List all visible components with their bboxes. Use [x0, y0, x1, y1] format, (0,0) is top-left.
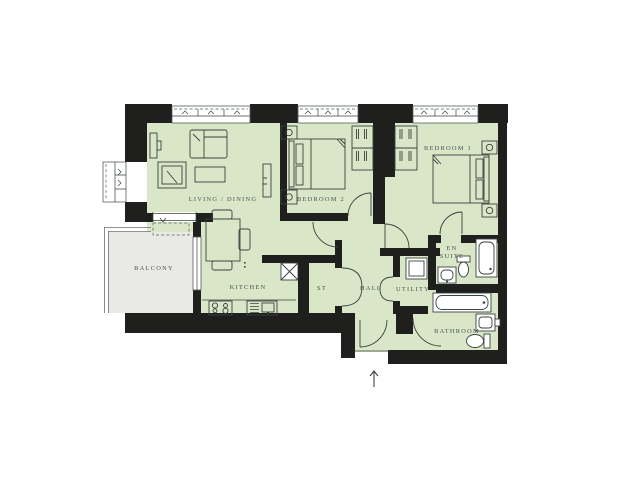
balcony-floor — [109, 232, 193, 313]
window-bedroom-1 — [413, 106, 478, 123]
label-utility: UTILITY — [396, 286, 430, 293]
label-balcony: BALCONY — [134, 265, 174, 272]
label-living-dining: LIVING / DINING — [189, 196, 257, 203]
bath — [433, 293, 491, 312]
services-cupboard — [281, 263, 298, 280]
label-bedroom-1: BEDROOM 1 — [424, 145, 472, 152]
en-suite-basin — [438, 267, 456, 283]
bathroom-wc — [467, 334, 491, 348]
label-en-suite-line2: SUITE — [440, 253, 464, 260]
window-bedroom-2 — [298, 106, 358, 123]
exterior-bottom-left — [100, 333, 343, 393]
floorplan-page: LIVING / DINING BEDROOM 2 BEDROOM 1 BALC… — [0, 0, 640, 480]
window-living-side — [103, 162, 126, 202]
label-hall: HALL — [360, 285, 382, 292]
window-kitchen-balcony — [193, 237, 201, 290]
label-store: ST — [317, 285, 327, 292]
label-bathroom: BATHROOM — [434, 328, 480, 335]
label-kitchen: KITCHEN — [230, 284, 267, 291]
label-bedroom-2: BEDROOM 2 — [297, 196, 345, 203]
washing-machine — [406, 258, 427, 279]
window-living — [172, 106, 250, 123]
floorplan-drawing: LIVING / DINING BEDROOM 2 BEDROOM 1 BALC… — [0, 0, 640, 480]
label-en-suite-line1: EN — [446, 245, 457, 252]
shower — [476, 239, 497, 277]
